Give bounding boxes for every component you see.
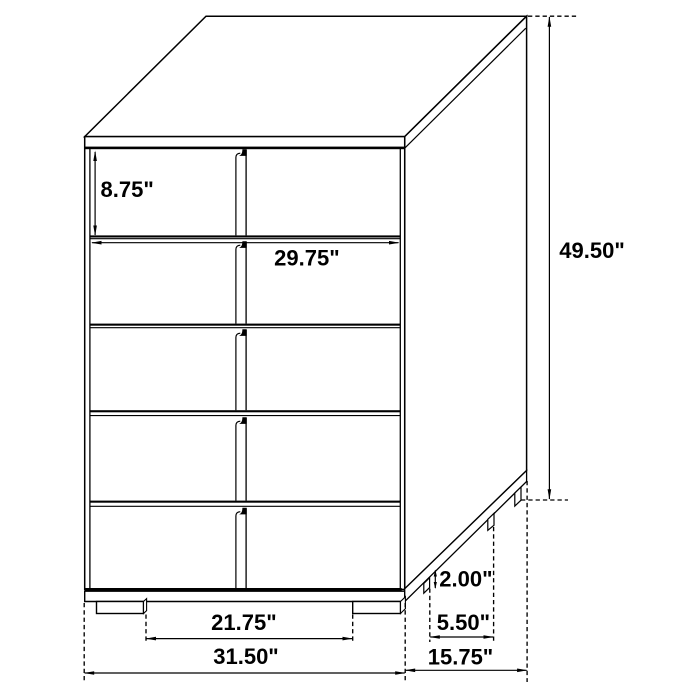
- svg-text:49.50": 49.50": [559, 238, 624, 263]
- svg-text:15.75": 15.75": [428, 644, 493, 669]
- svg-text:29.75": 29.75": [274, 245, 339, 270]
- svg-text:21.75": 21.75": [211, 610, 276, 635]
- svg-text:2.00": 2.00": [439, 567, 492, 592]
- svg-text:8.75": 8.75": [101, 177, 154, 202]
- svg-text:5.50": 5.50": [437, 610, 490, 635]
- svg-text:31.50": 31.50": [213, 644, 278, 669]
